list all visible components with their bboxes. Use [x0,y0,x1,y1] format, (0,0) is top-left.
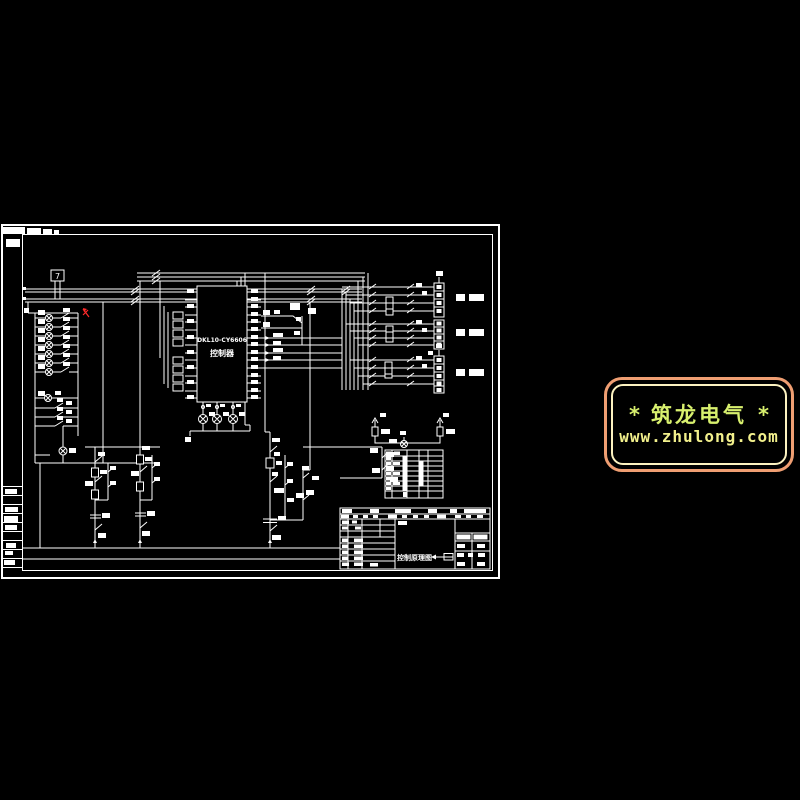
transformer-box-label: 7 [55,272,60,281]
signal-taps [261,333,342,368]
relay-loop-labels [263,303,316,335]
drawing-title: 控制原理图 [397,553,432,562]
controller-outline [197,286,247,402]
power-supply-labels [380,413,455,443]
terminal-strip-labels [456,294,484,376]
breaker-ladder-labels [38,308,76,453]
bus-terminal-marks [22,287,29,313]
title-block: 控制原理图 [340,508,490,569]
zhulong-watermark-inner-border: * 筑龙电气 * www.zhulong.com [611,384,787,465]
controller-model-label: DKL10-CY6606 [197,337,247,344]
output-circuit-labels [416,283,427,368]
cad-viewport: 7 DKL10-CY6606 控制器 [0,0,800,800]
relay-contact-loop [261,316,342,345]
logo-url: www.zhulong.com [619,429,779,445]
plot-stamp [3,227,59,247]
controller-name-label: 控制器 [210,348,235,358]
logo-star-right: * [758,405,769,426]
revision-mark [83,308,89,317]
transformer-box: 7 [51,270,64,281]
logo-star-left: * [629,405,640,426]
indicator-lamps [190,415,250,437]
logo-title-row: * 筑龙电气 * [613,405,785,426]
input-sensor-chains [23,432,389,559]
zhulong-watermark: * 筑龙电气 * www.zhulong.com [604,377,794,472]
terminal-strips [428,271,444,393]
input-interface-boxes [164,306,183,391]
controller-ic: DKL10-CY6606 控制器 [185,286,261,431]
logo-title: 筑龙电气 [651,405,747,426]
component-table [385,450,443,498]
margin-strip-labels [4,489,18,565]
